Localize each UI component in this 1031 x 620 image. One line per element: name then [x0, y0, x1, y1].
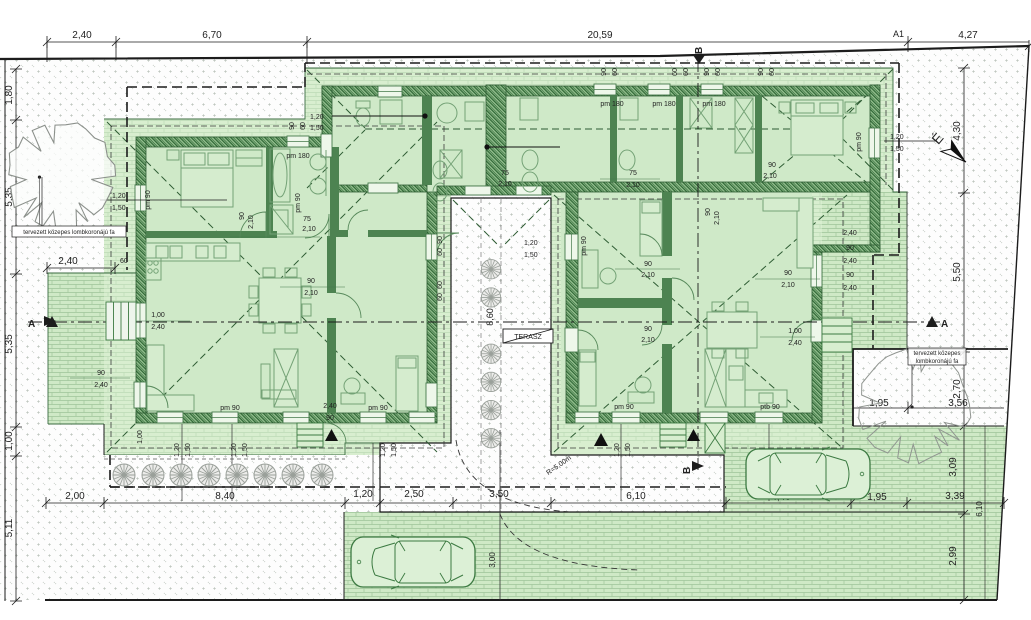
svg-text:2,10: 2,10 — [302, 226, 316, 233]
svg-text:90: 90 — [307, 278, 315, 285]
svg-text:1,80: 1,80 — [4, 85, 15, 105]
svg-text:1,50: 1,50 — [185, 443, 192, 457]
svg-text:1,20: 1,20 — [310, 114, 324, 121]
svg-text:90: 90 — [768, 162, 776, 169]
svg-text:A1: A1 — [893, 29, 904, 39]
svg-text:TERASZ: TERASZ — [514, 334, 542, 341]
svg-text:8,60: 8,60 — [485, 308, 495, 326]
svg-text:60: 60 — [715, 68, 722, 76]
svg-text:2,10: 2,10 — [763, 173, 777, 180]
svg-text:1,20: 1,20 — [174, 443, 181, 457]
svg-text:5,50: 5,50 — [952, 262, 963, 282]
svg-text:1,00: 1,00 — [4, 431, 15, 451]
svg-text:tervezett közepes lombkoronájú: tervezett közepes lombkoronájú fa — [23, 230, 115, 236]
svg-text:60: 60 — [437, 293, 444, 301]
svg-text:75: 75 — [501, 170, 509, 177]
svg-text:90: 90 — [758, 68, 765, 76]
svg-text:2,10: 2,10 — [498, 181, 512, 188]
svg-text:90: 90 — [239, 212, 246, 220]
svg-text:1,50: 1,50 — [890, 146, 904, 153]
svg-text:pm 180: pm 180 — [652, 101, 675, 108]
svg-text:1,20: 1,20 — [524, 240, 538, 247]
svg-text:60: 60 — [769, 68, 776, 76]
svg-text:lombkoronájú fa: lombkoronájú fa — [916, 359, 959, 365]
svg-text:pm 180: pm 180 — [600, 101, 623, 108]
svg-text:1,00: 1,00 — [151, 312, 165, 319]
svg-text:A: A — [941, 319, 948, 330]
svg-text:pm 90: pm 90 — [581, 236, 588, 256]
svg-text:60: 60 — [437, 281, 444, 289]
svg-text:2,99: 2,99 — [948, 546, 959, 566]
svg-text:A: A — [28, 319, 35, 330]
svg-text:1,20: 1,20 — [353, 489, 373, 500]
svg-text:2,50: 2,50 — [404, 489, 424, 500]
svg-text:2,40: 2,40 — [843, 258, 857, 265]
svg-text:3,09: 3,09 — [948, 457, 959, 477]
svg-text:5,35: 5,35 — [4, 334, 15, 354]
svg-text:1,20: 1,20 — [614, 443, 621, 457]
svg-text:2,40: 2,40 — [788, 340, 802, 347]
svg-text:1,50: 1,50 — [625, 443, 632, 457]
svg-text:pm 180: pm 180 — [286, 153, 309, 160]
svg-text:90: 90 — [846, 272, 854, 279]
svg-text:1,50: 1,50 — [524, 252, 538, 259]
svg-text:1,20: 1,20 — [112, 193, 126, 200]
svg-text:2,40: 2,40 — [72, 30, 92, 41]
svg-text:20,59: 20,59 — [587, 30, 612, 41]
svg-text:2,40: 2,40 — [58, 256, 78, 267]
svg-text:pm 90: pm 90 — [856, 132, 863, 152]
svg-text:3,39: 3,39 — [945, 491, 965, 502]
svg-text:2,10: 2,10 — [641, 337, 655, 344]
svg-text:3,00: 3,00 — [488, 552, 497, 568]
svg-text:90: 90 — [705, 208, 712, 216]
svg-text:pm 90: pm 90 — [368, 405, 388, 412]
svg-text:2,40: 2,40 — [94, 382, 108, 389]
svg-text:2,00: 2,00 — [65, 491, 85, 502]
svg-text:1,50: 1,50 — [242, 443, 249, 457]
svg-text:90: 90 — [846, 245, 854, 252]
svg-text:2,40: 2,40 — [843, 285, 857, 292]
svg-text:1,00: 1,00 — [788, 328, 802, 335]
svg-text:6,10: 6,10 — [626, 491, 646, 502]
svg-text:4,30: 4,30 — [952, 121, 963, 141]
svg-text:ptb 90: ptb 90 — [760, 404, 780, 411]
svg-text:2,10: 2,10 — [248, 215, 255, 229]
svg-text:1,95: 1,95 — [867, 492, 887, 503]
svg-text:2,40: 2,40 — [843, 230, 857, 237]
svg-text:1,50: 1,50 — [112, 205, 126, 212]
svg-text:6,10: 6,10 — [975, 501, 984, 517]
svg-text:60: 60 — [612, 68, 619, 76]
svg-text:90: 90 — [644, 261, 652, 268]
svg-text:1,50: 1,50 — [310, 125, 324, 132]
svg-text:60: 60 — [120, 258, 128, 265]
svg-text:90: 90 — [601, 68, 608, 76]
svg-text:1,00: 1,00 — [137, 430, 144, 444]
svg-text:60: 60 — [437, 248, 444, 256]
svg-text:60: 60 — [683, 68, 690, 76]
svg-text:3,50: 3,50 — [489, 489, 509, 500]
svg-text:60: 60 — [300, 122, 307, 130]
svg-text:75: 75 — [303, 216, 311, 223]
svg-text:B: B — [682, 467, 693, 474]
svg-text:90: 90 — [644, 326, 652, 333]
svg-text:3,56: 3,56 — [948, 398, 968, 409]
svg-text:1,20: 1,20 — [231, 443, 238, 457]
svg-text:2,10: 2,10 — [714, 211, 721, 225]
svg-text:5,11: 5,11 — [4, 518, 15, 537]
svg-text:8,40: 8,40 — [215, 491, 235, 502]
svg-text:2,40: 2,40 — [323, 403, 337, 410]
svg-text:90: 90 — [326, 415, 334, 422]
svg-text:2,40: 2,40 — [151, 324, 165, 331]
svg-text:90: 90 — [97, 370, 105, 377]
svg-text:6,70: 6,70 — [202, 30, 222, 41]
svg-text:pm 90: pm 90 — [614, 404, 634, 411]
svg-text:2,10: 2,10 — [781, 282, 795, 289]
svg-text:2,10: 2,10 — [626, 182, 640, 189]
svg-text:4,27: 4,27 — [958, 30, 978, 41]
svg-text:1,50: 1,50 — [391, 443, 398, 457]
svg-text:tervezett közepes: tervezett közepes — [913, 351, 960, 357]
svg-text:pm 180: pm 180 — [702, 101, 725, 108]
svg-text:90: 90 — [437, 236, 444, 244]
svg-text:2,10: 2,10 — [304, 290, 318, 297]
svg-text:90: 90 — [289, 122, 296, 130]
svg-text:pm 90: pm 90 — [220, 405, 240, 412]
svg-text:2,10: 2,10 — [641, 272, 655, 279]
svg-text:1,20: 1,20 — [890, 134, 904, 141]
svg-text:60: 60 — [672, 68, 679, 76]
svg-text:pm 90: pm 90 — [145, 190, 152, 210]
svg-text:pm 90: pm 90 — [295, 193, 302, 213]
svg-text:90: 90 — [784, 270, 792, 277]
svg-text:B: B — [694, 47, 705, 54]
svg-text:1,20: 1,20 — [380, 443, 387, 457]
svg-text:90: 90 — [704, 68, 711, 76]
svg-text:75: 75 — [629, 170, 637, 177]
